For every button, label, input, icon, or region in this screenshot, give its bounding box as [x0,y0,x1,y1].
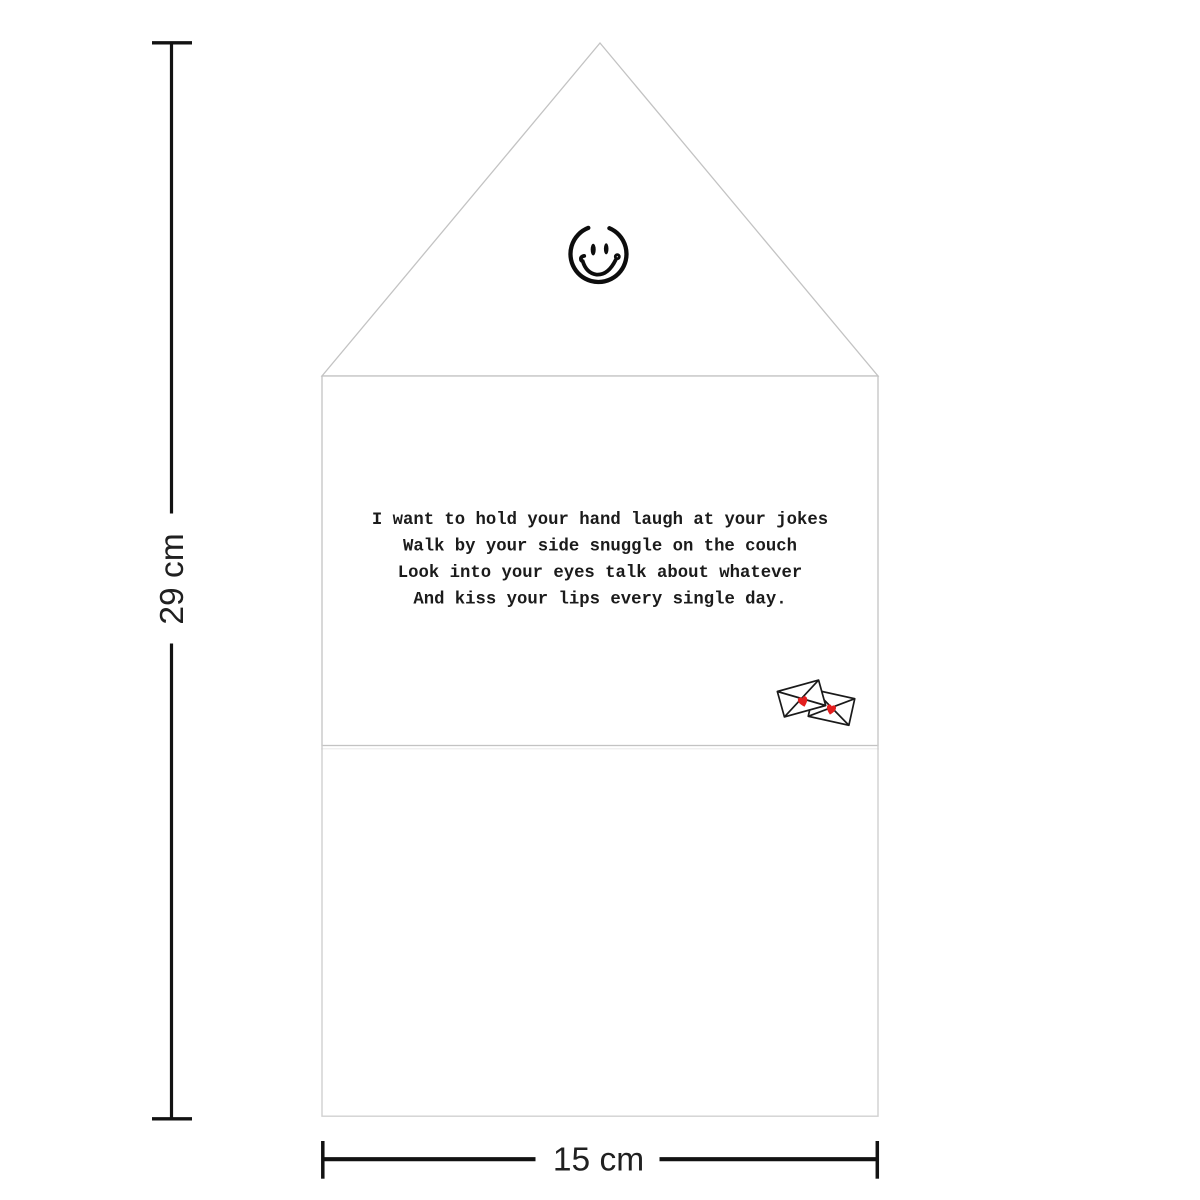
svg-text:15 cm: 15 cm [553,1142,644,1179]
svg-text:And kiss your lips every singl: And kiss your lips every single day. [413,590,786,609]
svg-text:Look into your eyes talk about: Look into your eyes talk about whatever [398,564,802,583]
svg-text:I want to hold your hand laugh: I want to hold your hand laugh at your j… [372,511,828,530]
svg-text:Walk by your side snuggle on t: Walk by your side snuggle on the couch [403,538,797,557]
svg-text:29 cm: 29 cm [154,533,191,624]
